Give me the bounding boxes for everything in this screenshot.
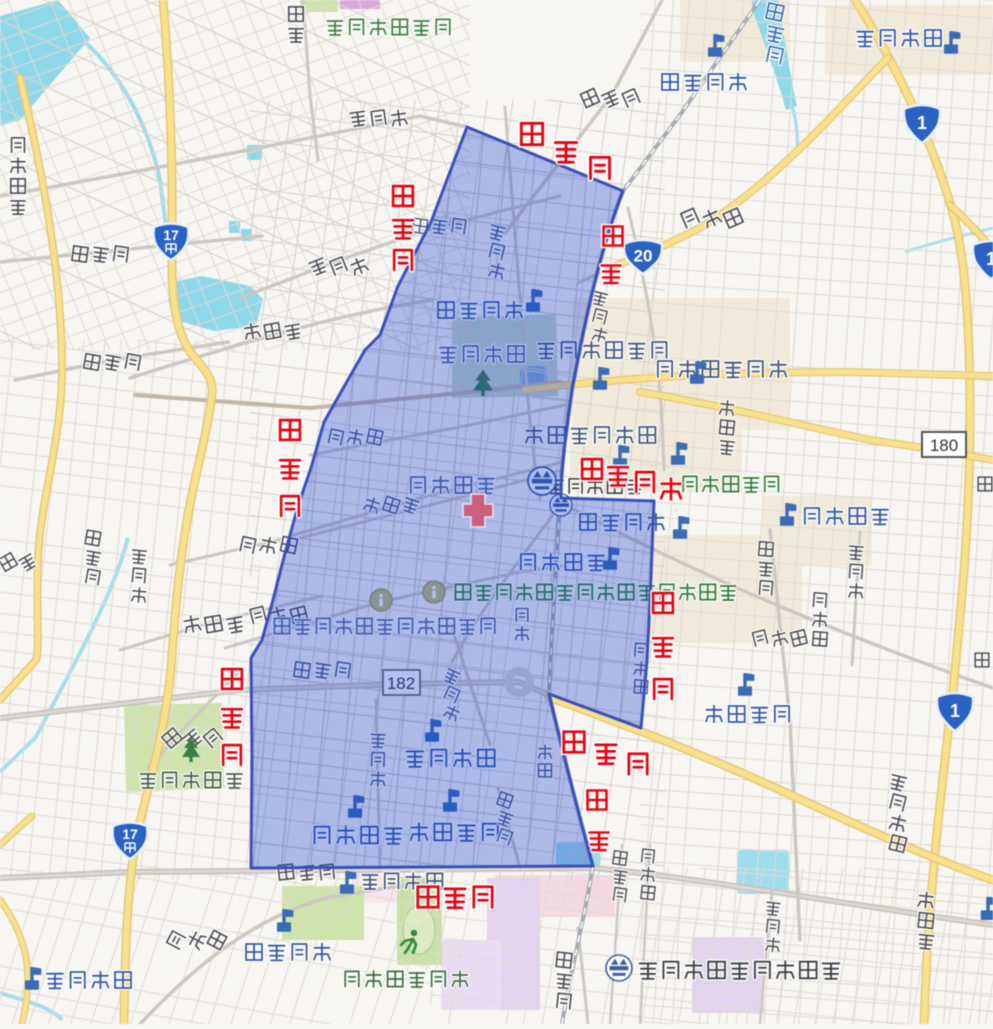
svg-text:17: 17	[122, 826, 138, 842]
svg-text:180: 180	[930, 436, 958, 455]
svg-text:1: 1	[917, 113, 927, 133]
svg-text:20: 20	[634, 246, 653, 265]
svg-text:17: 17	[163, 227, 179, 243]
svg-text:1: 1	[950, 701, 960, 721]
svg-text:1: 1	[986, 249, 993, 269]
